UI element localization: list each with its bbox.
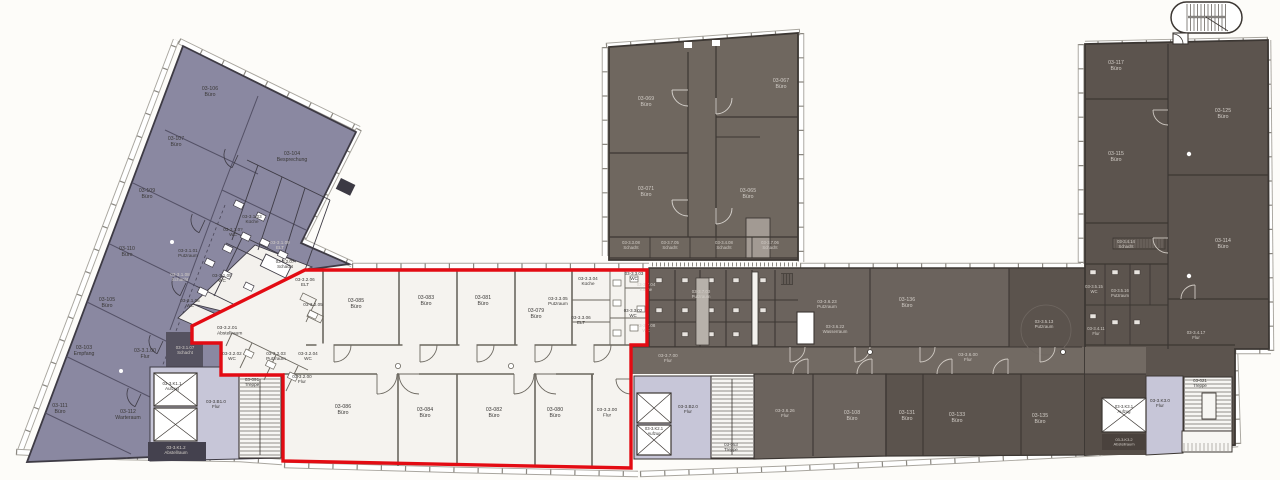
svg-text:03-3.7.06Schacht: 03-3.7.06Schacht <box>761 240 779 250</box>
svg-text:03-103Empfang: 03-103Empfang <box>74 345 95 357</box>
svg-text:03-3.2.05: 03-3.2.05 <box>303 302 323 307</box>
svg-text:03-053Treppe: 03-053Treppe <box>724 442 738 452</box>
svg-text:03-3.2.07Schacht: 03-3.2.07Schacht <box>276 259 295 269</box>
svg-text:03-3.6.23Putzraum: 03-3.6.23Putzraum <box>817 299 837 309</box>
svg-text:03-3.7.05Schacht: 03-3.7.05Schacht <box>661 240 679 250</box>
svg-text:03-3.5.13Putzraum: 03-3.5.13Putzraum <box>1035 319 1054 329</box>
svg-text:03-3.2.03Putzraum: 03-3.2.03Putzraum <box>266 351 286 361</box>
svg-text:03-091Treppe: 03-091Treppe <box>245 377 260 387</box>
svg-text:03-3.K1.2Abstellraum: 03-3.K1.2Abstellraum <box>164 445 188 455</box>
svg-text:03-3.K3.2Abstellraum: 03-3.K3.2Abstellraum <box>1113 437 1135 447</box>
svg-text:03-111Büro: 03-111Büro <box>52 403 67 415</box>
svg-text:03-3.4.14Schacht: 03-3.4.14Schacht <box>1117 239 1135 249</box>
svg-text:03-3.3.08Schacht: 03-3.3.08Schacht <box>622 240 640 250</box>
svg-text:03-3.6.22Wasserraum: 03-3.6.22Wasserraum <box>823 324 848 334</box>
svg-text:03-3.4.08Schacht: 03-3.4.08Schacht <box>715 240 733 250</box>
svg-text:03-3.3.05Putzraum: 03-3.3.05Putzraum <box>548 296 568 306</box>
svg-text:03-3.1.01Putzraum: 03-3.1.01Putzraum <box>178 248 198 258</box>
svg-text:03-3.7.03Putzraum: 03-3.7.03Putzraum <box>692 289 711 299</box>
svg-text:03-021Treppe: 03-021Treppe <box>1193 378 1207 388</box>
svg-text:03-3.1.07Schacht: 03-3.1.07Schacht <box>176 345 195 355</box>
svg-text:03-3.1.08Schacht: 03-3.1.08Schacht <box>170 272 190 282</box>
svg-text:03-3.5.16Putzraum: 03-3.5.16Putzraum <box>1111 288 1129 298</box>
